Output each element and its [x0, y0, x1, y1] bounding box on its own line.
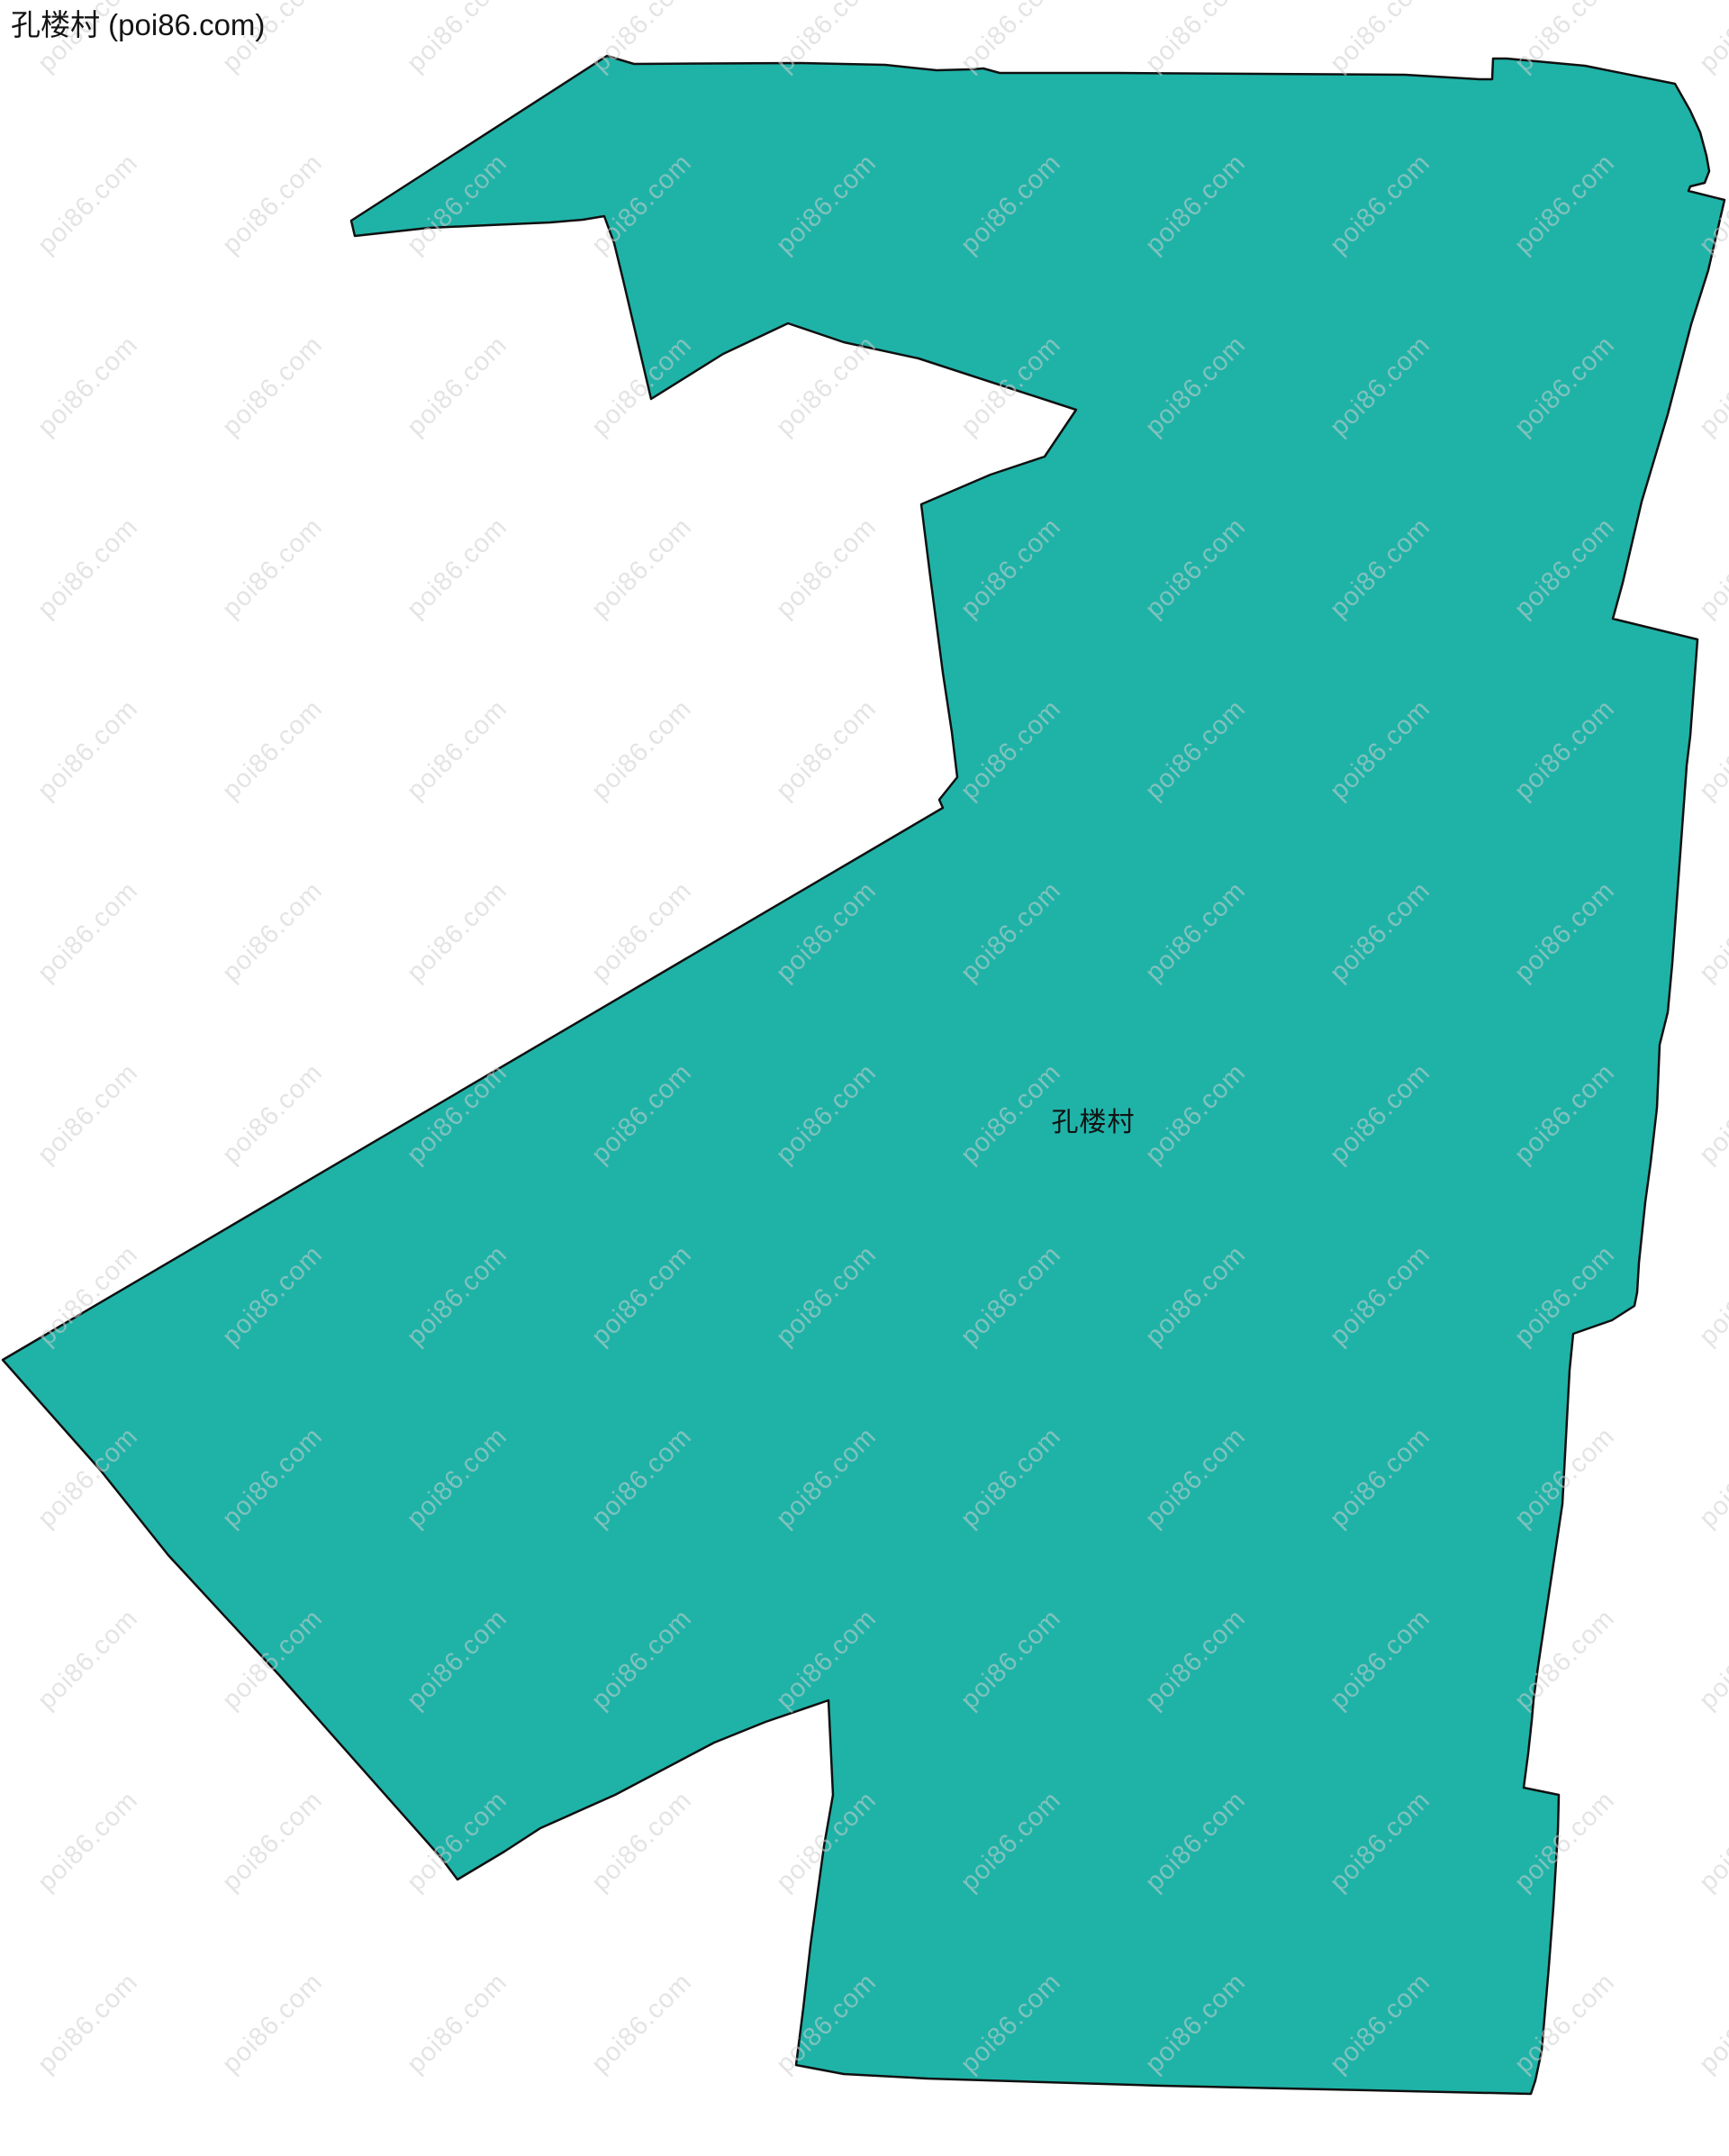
region-label: 孔楼村 — [1052, 1100, 1136, 1139]
village-boundary-map — [0, 0, 1729, 2156]
page-title: 孔楼村 (poi86.com) — [11, 7, 265, 43]
map-page: poi86.compoi86.compoi86.compoi86.compoi8… — [0, 0, 1729, 2156]
village-polygon — [3, 56, 1724, 2094]
